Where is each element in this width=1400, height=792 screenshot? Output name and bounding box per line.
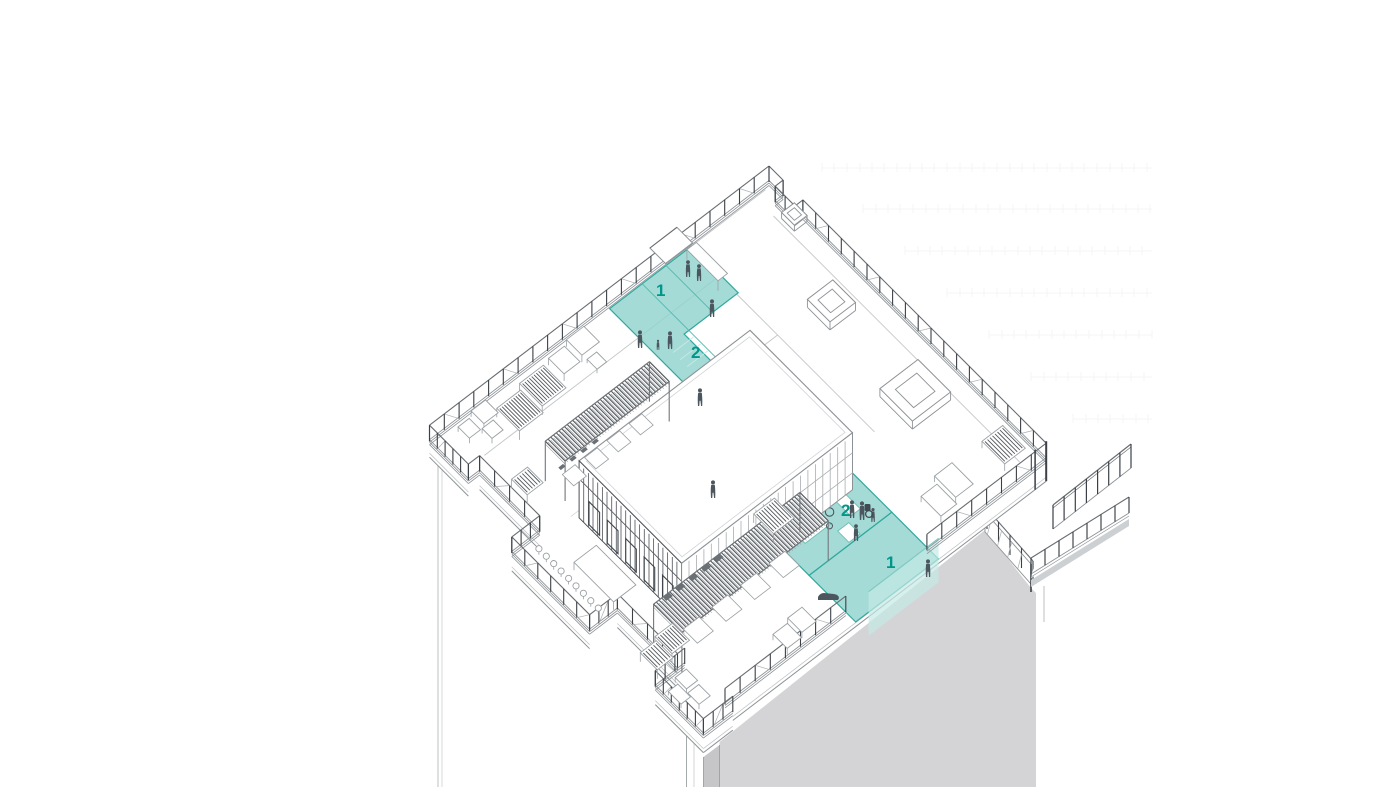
svg-text:2: 2 bbox=[691, 343, 700, 362]
svg-text:1: 1 bbox=[656, 281, 665, 300]
svg-text:2: 2 bbox=[841, 501, 850, 520]
svg-text:1: 1 bbox=[886, 553, 895, 572]
